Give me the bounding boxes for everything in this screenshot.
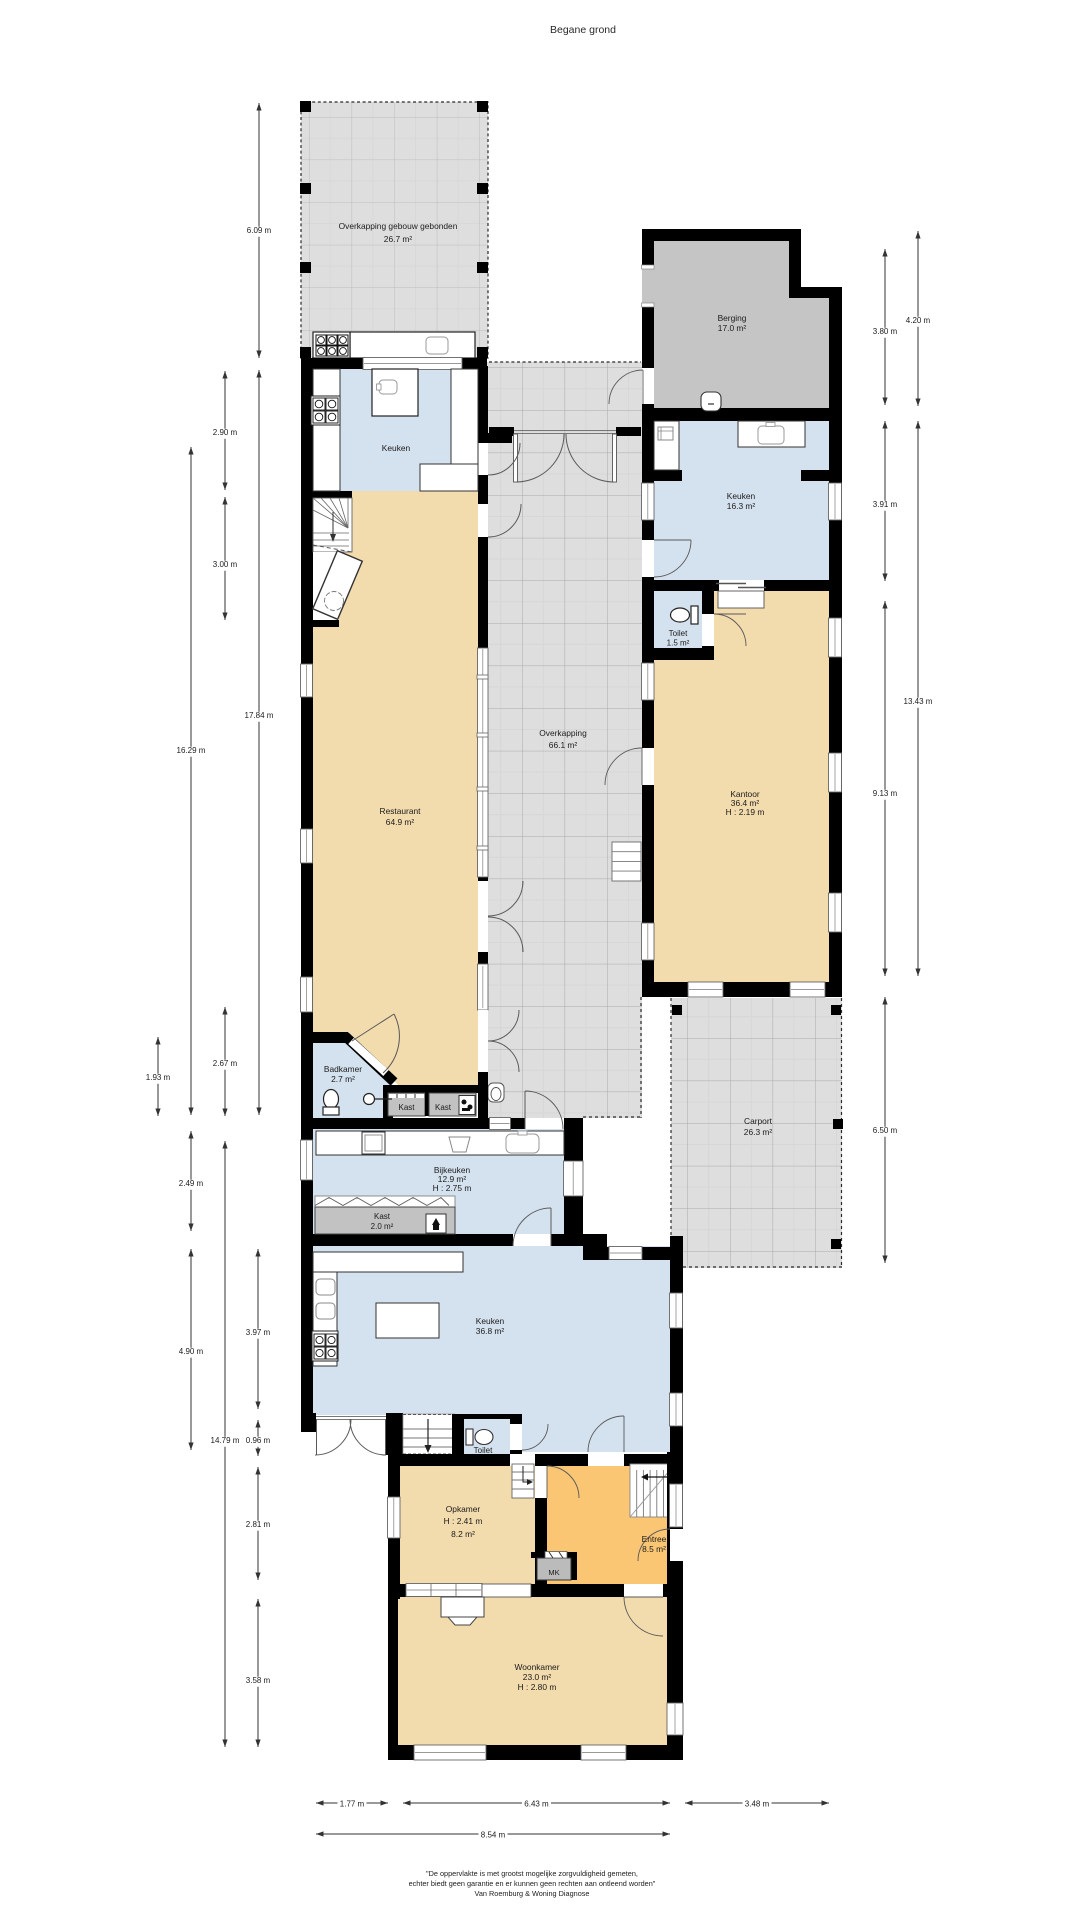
svg-text:4.20 m: 4.20 m bbox=[906, 316, 931, 325]
svg-text:66.1 m²: 66.1 m² bbox=[549, 740, 578, 750]
svg-text:2.0 m²: 2.0 m² bbox=[371, 1222, 394, 1231]
svg-text:9.13 m: 9.13 m bbox=[873, 789, 898, 798]
svg-text:Opkamer: Opkamer bbox=[446, 1504, 481, 1514]
svg-text:13.43 m: 13.43 m bbox=[904, 697, 933, 706]
svg-text:36.8 m²: 36.8 m² bbox=[476, 1326, 505, 1336]
svg-text:3.91 m: 3.91 m bbox=[873, 500, 898, 509]
svg-text:echter biedt geen garantie en: echter biedt geen garantie en er kunnen … bbox=[409, 1879, 656, 1888]
svg-text:17.84 m: 17.84 m bbox=[245, 711, 274, 720]
svg-text:14.79 m: 14.79 m bbox=[211, 1436, 240, 1445]
svg-text:16.29 m: 16.29 m bbox=[177, 746, 206, 755]
svg-text:16.3 m²: 16.3 m² bbox=[727, 501, 756, 511]
svg-text:Toilet: Toilet bbox=[474, 1446, 493, 1455]
svg-text:3.58 m: 3.58 m bbox=[246, 1676, 271, 1685]
svg-text:Begane grond: Begane grond bbox=[550, 24, 616, 36]
svg-text:Overkapping gebouw gebonden: Overkapping gebouw gebonden bbox=[339, 221, 458, 231]
svg-text:Carport: Carport bbox=[744, 1116, 773, 1126]
svg-text:2.90 m: 2.90 m bbox=[213, 428, 238, 437]
svg-text:1.93 m: 1.93 m bbox=[146, 1073, 171, 1082]
svg-text:1.5 m²: 1.5 m² bbox=[667, 639, 690, 648]
svg-text:3.48 m: 3.48 m bbox=[745, 1800, 770, 1809]
svg-text:26.7 m²: 26.7 m² bbox=[384, 234, 413, 244]
svg-text:8.5 m²: 8.5 m² bbox=[642, 1544, 666, 1554]
svg-text:H : 2.19 m: H : 2.19 m bbox=[726, 807, 765, 817]
svg-text:6.50 m: 6.50 m bbox=[873, 1126, 898, 1135]
svg-text:Keuken: Keuken bbox=[727, 491, 756, 501]
svg-text:Kast: Kast bbox=[435, 1103, 452, 1112]
svg-text:23.0 m²: 23.0 m² bbox=[523, 1672, 552, 1682]
svg-text:3.00 m: 3.00 m bbox=[213, 560, 238, 569]
svg-text:Overkapping: Overkapping bbox=[539, 728, 587, 738]
svg-text:2.49 m: 2.49 m bbox=[179, 1179, 204, 1188]
svg-text:Entree: Entree bbox=[642, 1534, 667, 1544]
svg-text:4.90 m: 4.90 m bbox=[179, 1347, 204, 1356]
svg-text:3.80 m: 3.80 m bbox=[873, 327, 898, 336]
svg-text:Restaurant: Restaurant bbox=[380, 806, 422, 816]
svg-text:Kast: Kast bbox=[398, 1103, 415, 1112]
svg-text:6.43 m: 6.43 m bbox=[524, 1800, 549, 1809]
svg-text:MK: MK bbox=[548, 1568, 559, 1577]
svg-text:Badkamer: Badkamer bbox=[324, 1064, 362, 1074]
svg-text:6.09 m: 6.09 m bbox=[247, 226, 272, 235]
svg-text:Kast: Kast bbox=[374, 1212, 391, 1221]
svg-text:"De oppervlakte is met grootst: "De oppervlakte is met grootst mogelijke… bbox=[426, 1869, 638, 1878]
svg-text:H : 2.80 m: H : 2.80 m bbox=[518, 1682, 557, 1692]
svg-text:8.54 m: 8.54 m bbox=[481, 1831, 506, 1840]
svg-text:64.9 m²: 64.9 m² bbox=[386, 817, 415, 827]
svg-text:2.67 m: 2.67 m bbox=[213, 1059, 238, 1068]
svg-text:Keuken: Keuken bbox=[476, 1316, 505, 1326]
svg-text:Berging: Berging bbox=[718, 313, 747, 323]
svg-text:3.97 m: 3.97 m bbox=[246, 1328, 271, 1337]
svg-text:Van Roemburg & Woning Diagnose: Van Roemburg & Woning Diagnose bbox=[475, 1889, 590, 1898]
svg-text:8.2 m²: 8.2 m² bbox=[451, 1529, 475, 1539]
svg-text:1.77 m: 1.77 m bbox=[340, 1800, 365, 1809]
svg-text:Keuken: Keuken bbox=[382, 443, 411, 453]
svg-text:H : 2.75 m: H : 2.75 m bbox=[433, 1183, 472, 1193]
svg-text:Toilet: Toilet bbox=[669, 629, 688, 638]
svg-text:H : 2.41 m: H : 2.41 m bbox=[444, 1516, 483, 1526]
svg-text:2.7 m²: 2.7 m² bbox=[331, 1074, 355, 1084]
svg-text:17.0 m²: 17.0 m² bbox=[718, 323, 747, 333]
svg-text:Woonkamer: Woonkamer bbox=[515, 1662, 560, 1672]
svg-text:0.96 m: 0.96 m bbox=[246, 1436, 271, 1445]
svg-text:26.3 m²: 26.3 m² bbox=[744, 1127, 773, 1137]
svg-text:2.81 m: 2.81 m bbox=[246, 1520, 271, 1529]
